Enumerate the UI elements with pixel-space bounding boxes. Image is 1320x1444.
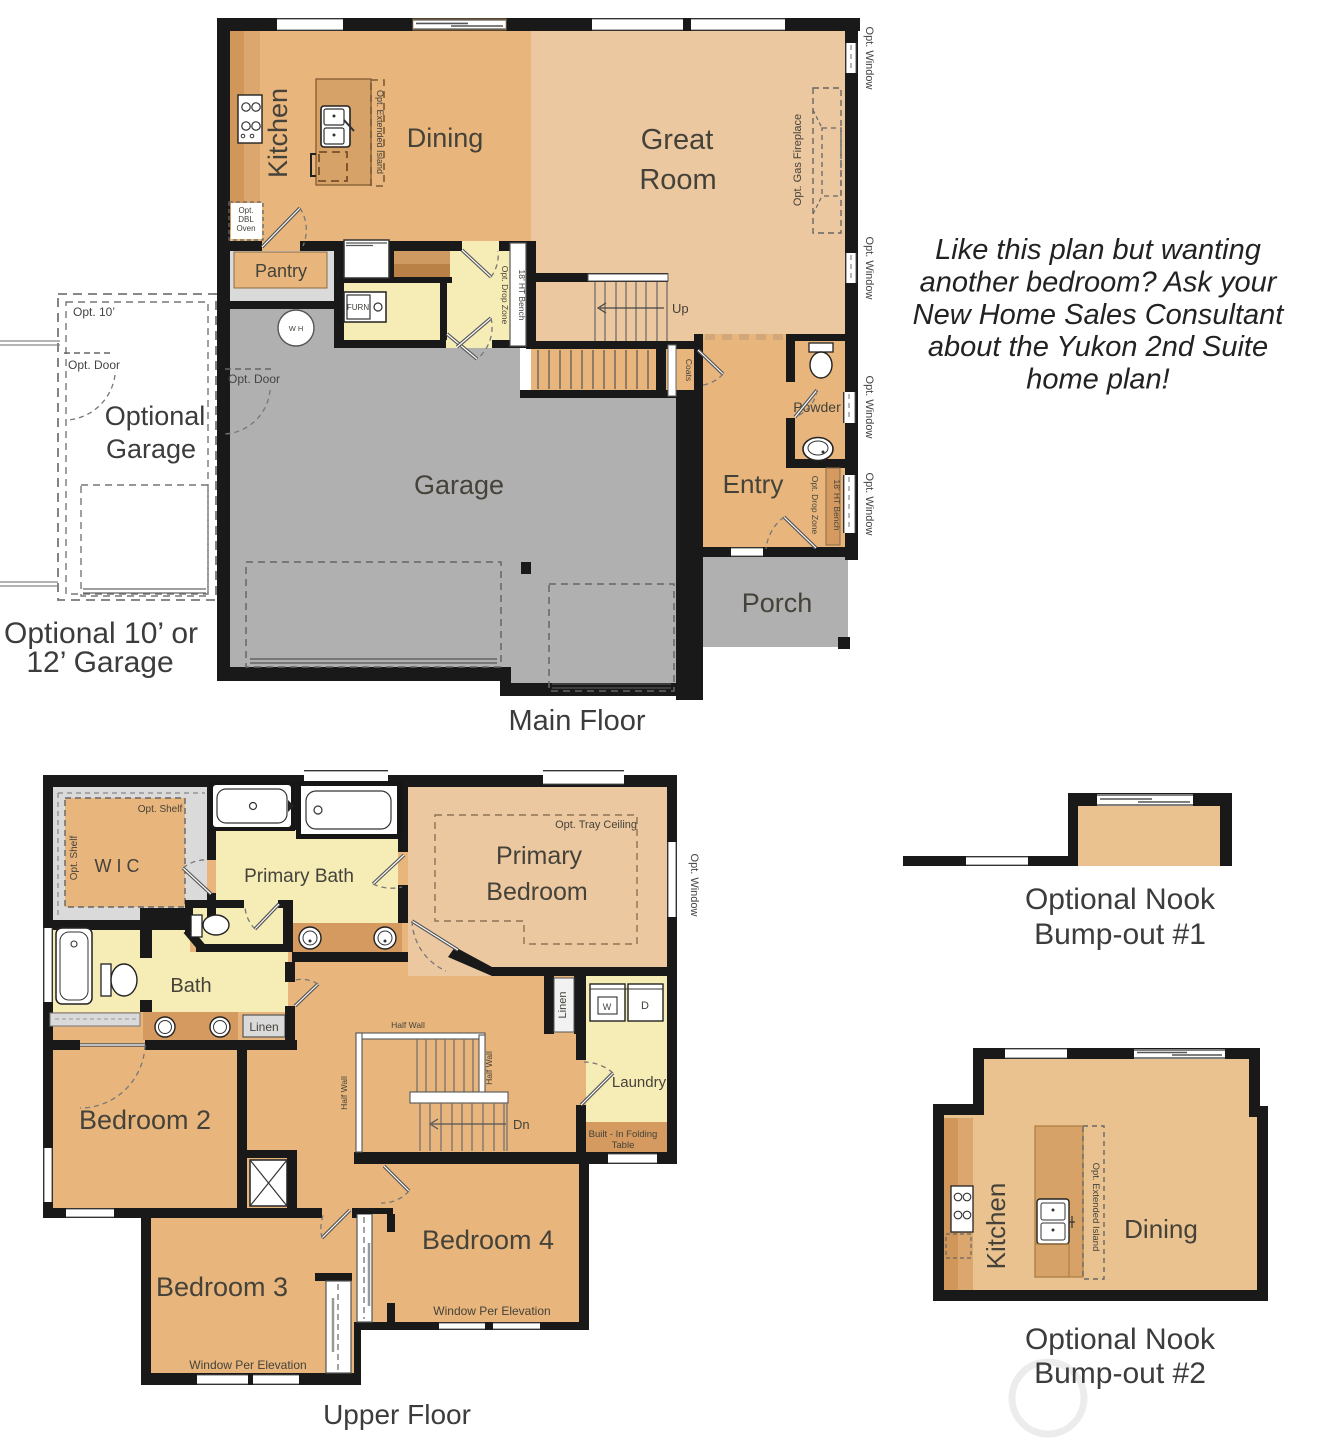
- svg-text:Opt. Shelf: Opt. Shelf: [138, 804, 183, 815]
- svg-text:Bath: Bath: [170, 975, 211, 997]
- svg-text:Up: Up: [672, 301, 689, 316]
- svg-text:Opt. Window: Opt. Window: [863, 237, 875, 300]
- svg-text:Porch: Porch: [742, 588, 813, 618]
- svg-text:Dining: Dining: [1124, 1214, 1198, 1244]
- svg-text:Half Wall: Half Wall: [339, 1076, 349, 1110]
- svg-text:Opt. Window: Opt. Window: [863, 27, 875, 90]
- svg-text:12’ Garage: 12’ Garage: [26, 646, 173, 679]
- svg-text:Pantry: Pantry: [255, 261, 307, 281]
- svg-text:18’ HT Bench: 18’ HT Bench: [517, 269, 527, 320]
- svg-text:Opt. 10’: Opt. 10’: [73, 305, 115, 319]
- svg-text:Opt. Window: Opt. Window: [688, 854, 700, 917]
- svg-text:Opt. Extended Island: Opt. Extended Island: [375, 90, 385, 174]
- svg-text:Laundry: Laundry: [612, 1074, 667, 1091]
- svg-text:18’ HT Bench: 18’ HT Bench: [832, 479, 842, 530]
- svg-text:Bump-out #2: Bump-out #2: [1034, 1357, 1206, 1390]
- svg-text:Window Per Elevation: Window Per Elevation: [189, 1358, 306, 1372]
- svg-text:Garage: Garage: [414, 470, 504, 500]
- svg-text:Opt. Drop Zone: Opt. Drop Zone: [500, 266, 510, 325]
- svg-text:DBL: DBL: [238, 215, 254, 224]
- svg-text:Linen: Linen: [557, 992, 569, 1019]
- svg-text:Primary Bath: Primary Bath: [244, 866, 354, 887]
- svg-text:Opt. Gas Fireplace: Opt. Gas Fireplace: [792, 114, 804, 206]
- svg-text:D: D: [641, 1000, 649, 1012]
- svg-text:Like this plan but wanting: Like this plan but wanting: [935, 234, 1261, 266]
- svg-text:Built - In Folding: Built - In Folding: [589, 1129, 658, 1140]
- svg-text:Upper Floor: Upper Floor: [323, 1399, 471, 1430]
- svg-text:Oven: Oven: [236, 224, 255, 233]
- svg-text:W I C: W I C: [95, 856, 140, 876]
- svg-text:Dining: Dining: [407, 123, 484, 153]
- svg-text:Opt. Window: Opt. Window: [863, 376, 875, 439]
- svg-text:Half Wall: Half Wall: [391, 1020, 425, 1030]
- svg-text:Opt.: Opt.: [238, 206, 253, 215]
- svg-text:Bump-out #1: Bump-out #1: [1034, 918, 1206, 951]
- svg-text:about the Yukon 2nd Suite: about the Yukon 2nd Suite: [928, 331, 1268, 363]
- svg-text:Bedroom 3: Bedroom 3: [156, 1272, 288, 1302]
- svg-text:Garage: Garage: [106, 434, 196, 464]
- svg-text:Coats: Coats: [684, 359, 694, 381]
- svg-text:Kitchen: Kitchen: [263, 88, 293, 178]
- svg-text:New Home Sales Consultant: New Home Sales Consultant: [913, 299, 1286, 331]
- svg-text:Window Per Elevation: Window Per Elevation: [433, 1304, 550, 1318]
- svg-text:another bedroom? Ask your: another bedroom? Ask your: [920, 266, 1278, 298]
- svg-text:Room: Room: [639, 164, 716, 196]
- svg-text:Opt. Extended Island: Opt. Extended Island: [1090, 1163, 1101, 1252]
- svg-text:Optional: Optional: [105, 401, 206, 431]
- svg-text:Bedroom 4: Bedroom 4: [422, 1225, 554, 1255]
- svg-text:home plan!: home plan!: [1026, 364, 1170, 396]
- svg-text:Opt. Door: Opt. Door: [68, 358, 120, 372]
- svg-text:Opt. Shelf: Opt. Shelf: [69, 836, 80, 881]
- svg-text:Main Floor: Main Floor: [509, 705, 646, 737]
- svg-text:Opt. Window: Opt. Window: [863, 473, 875, 536]
- svg-text:W H: W H: [289, 324, 304, 333]
- svg-text:Half Wall: Half Wall: [484, 1051, 494, 1085]
- svg-text:Dn: Dn: [513, 1117, 530, 1132]
- svg-text:Optional Nook: Optional Nook: [1025, 1323, 1216, 1356]
- svg-text:Opt. Door: Opt. Door: [228, 372, 280, 386]
- svg-text:Primary: Primary: [496, 842, 583, 870]
- svg-text:W: W: [603, 1002, 612, 1012]
- svg-text:Table: Table: [612, 1140, 635, 1151]
- svg-text:Bedroom: Bedroom: [486, 878, 587, 906]
- svg-text:Entry: Entry: [723, 469, 784, 499]
- svg-text:Opt. Drop Zone: Opt. Drop Zone: [810, 476, 820, 535]
- svg-text:Optional Nook: Optional Nook: [1025, 883, 1216, 916]
- svg-text:Kitchen: Kitchen: [981, 1183, 1011, 1270]
- svg-text:Opt. Tray Ceiling: Opt. Tray Ceiling: [555, 819, 637, 831]
- svg-text:Linen: Linen: [249, 1020, 278, 1034]
- svg-text:Great: Great: [641, 124, 714, 156]
- svg-text:Bedroom 2: Bedroom 2: [79, 1105, 211, 1135]
- svg-text:FURN: FURN: [347, 303, 369, 312]
